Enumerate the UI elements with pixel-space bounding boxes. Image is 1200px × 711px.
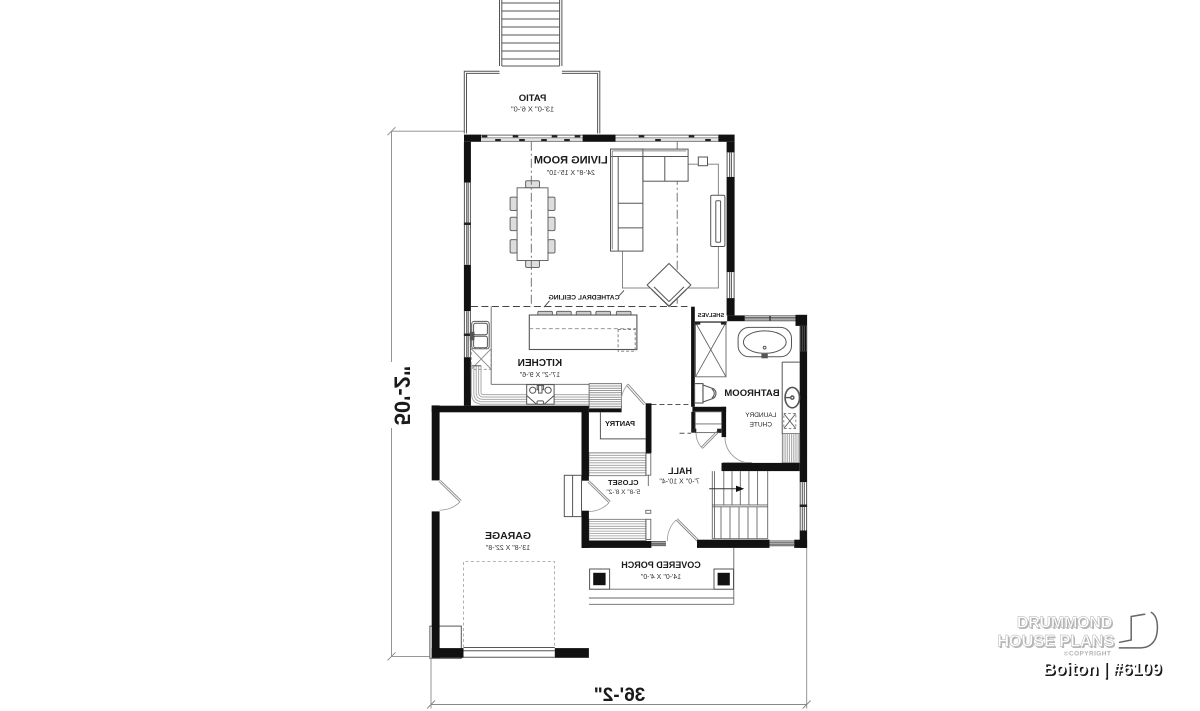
svg-text:PANTRY: PANTRY xyxy=(605,419,635,428)
svg-text:7'-0" X 10'-4": 7'-0" X 10'-4" xyxy=(659,479,700,486)
svg-text:BATHROOM: BATHROOM xyxy=(724,388,779,399)
svg-text:5'-8" X 8'-2": 5'-8" X 8'-2" xyxy=(606,489,641,496)
svg-text:GARAGE: GARAGE xyxy=(485,530,531,542)
svg-text:COVERED PORCH: COVERED PORCH xyxy=(621,560,701,570)
svg-text:HALL: HALL xyxy=(668,466,692,476)
svg-text:LAUNDRY: LAUNDRY xyxy=(745,412,777,419)
svg-text:24'-8" X 15'-10": 24'-8" X 15'-10" xyxy=(546,170,595,177)
svg-text:PATIO: PATIO xyxy=(519,93,547,104)
svg-text:13'-8" X 22'-8": 13'-8" X 22'-8" xyxy=(485,545,530,552)
svg-text:DRUMMOND: DRUMMOND xyxy=(1017,615,1112,632)
svg-text:50'-2": 50'-2" xyxy=(390,366,415,426)
svg-text:14'-0" X 4'-0": 14'-0" X 4'-0" xyxy=(640,574,681,581)
svg-text:Boiton | #6109: Boiton | #6109 xyxy=(1043,659,1162,679)
svg-text:36'-2": 36'-2" xyxy=(594,685,646,706)
svg-text:17'-2" X 9'-6": 17'-2" X 9'-6" xyxy=(519,372,560,379)
svg-text:LIVING ROOM: LIVING ROOM xyxy=(534,155,608,167)
svg-text:KITCHEN: KITCHEN xyxy=(518,358,562,369)
svg-text:HOUSE PLANS: HOUSE PLANS xyxy=(997,633,1114,651)
svg-text:©COPYRIGHT: ©COPYRIGHT xyxy=(1064,650,1111,658)
svg-text:SHELVES: SHELVES xyxy=(697,313,724,319)
svg-text:CLOSET: CLOSET xyxy=(608,478,639,487)
svg-text:CHUTE: CHUTE xyxy=(749,422,772,429)
svg-text:CATHEDRAL CEILING: CATHEDRAL CEILING xyxy=(548,295,619,302)
svg-text:13'-0" X 6'-0": 13'-0" X 6'-0" xyxy=(511,105,555,114)
